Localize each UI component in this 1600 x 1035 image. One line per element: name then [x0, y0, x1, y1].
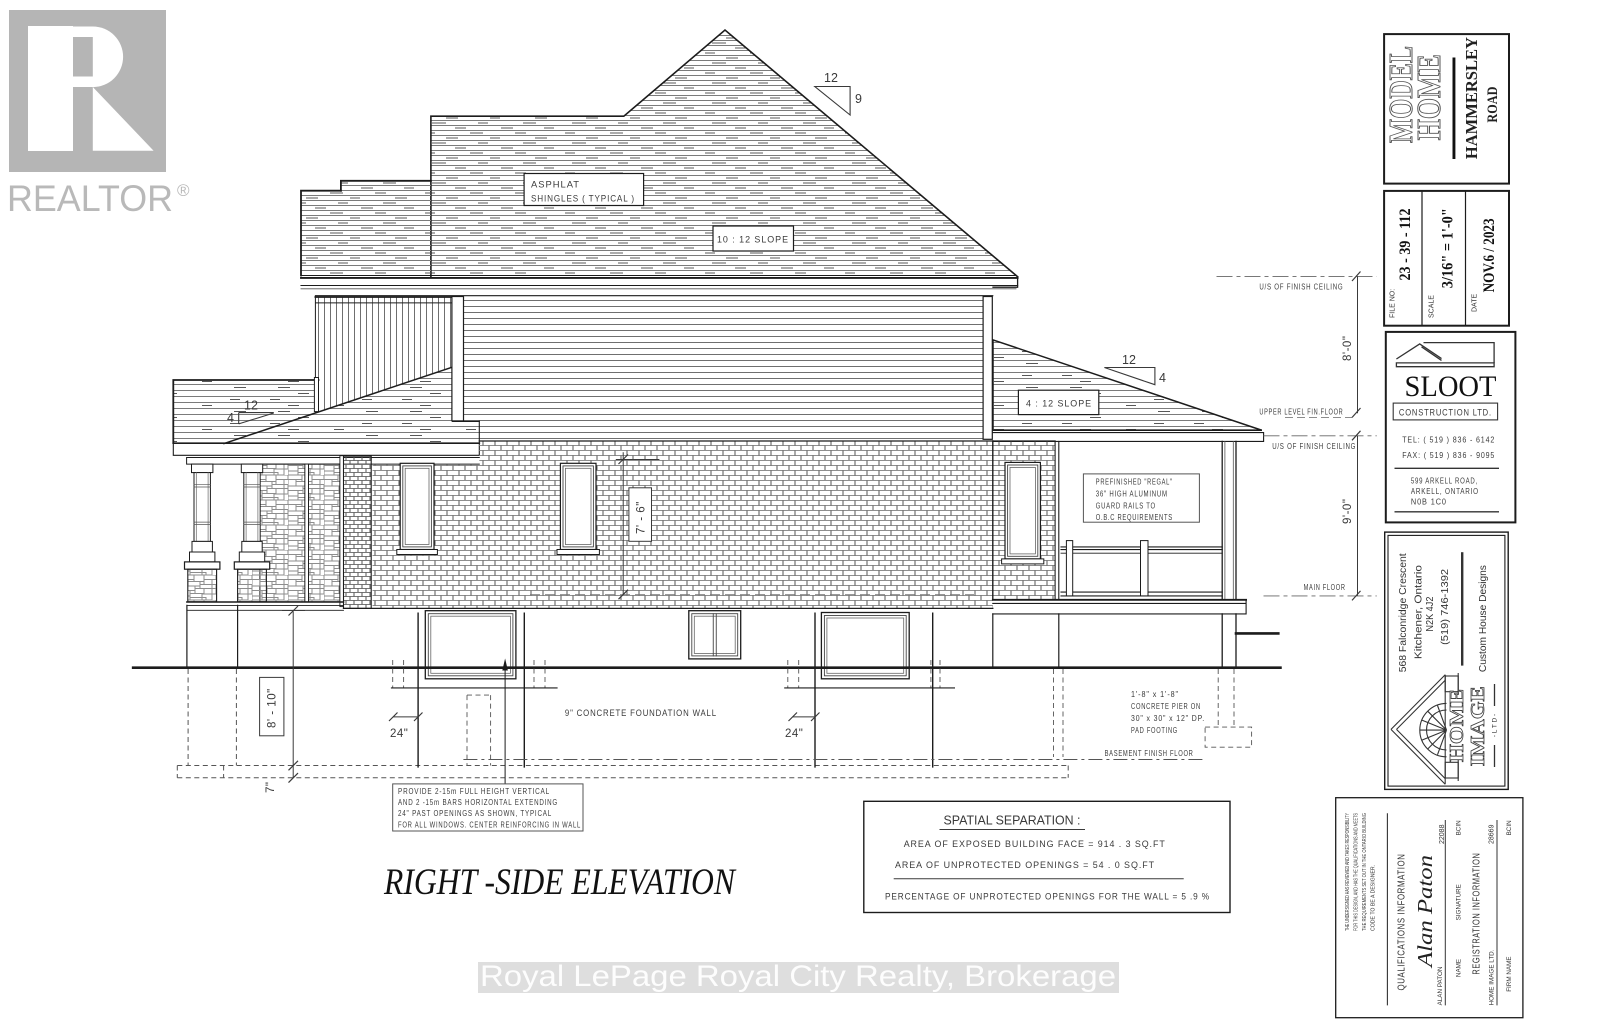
svg-text:TEL: ( 519 ) 836 - 6142: TEL: ( 519 ) 836 - 6142: [1402, 436, 1495, 445]
svg-text:GUARD RAILS TO: GUARD RAILS TO: [1096, 502, 1156, 511]
svg-text:N2K 4J2: N2K 4J2: [1425, 596, 1436, 631]
svg-text:4 : 12 SLOPE: 4 : 12 SLOPE: [1026, 398, 1092, 409]
svg-text:AREA OF UNPROTECTED OPENINGS: AREA OF UNPROTECTED OPENINGS = 54 . 0 SQ…: [895, 860, 1155, 871]
svg-text:599 ARKELL ROAD,: 599 ARKELL ROAD,: [1411, 477, 1478, 486]
svg-text:REGISTRATION INFORMATION: REGISTRATION INFORMATION: [1471, 853, 1483, 975]
svg-text:SHINGLES ( TYPICAL ): SHINGLES ( TYPICAL ): [531, 193, 635, 204]
svg-text:9'-0": 9'-0": [1342, 499, 1354, 524]
svg-text:ALAN PATON: ALAN PATON: [1437, 966, 1444, 1005]
svg-text:FAX: ( 519 ) 836 - 9095: FAX: ( 519 ) 836 - 9095: [1402, 451, 1495, 460]
svg-text:SPATIAL SEPARATION :: SPATIAL SEPARATION :: [944, 814, 1081, 828]
svg-text:Custom House Designs: Custom House Designs: [1478, 565, 1489, 672]
svg-text:ROAD: ROAD: [1485, 86, 1501, 122]
svg-text:BCIN: BCIN: [1456, 820, 1463, 835]
svg-text:12: 12: [244, 399, 258, 413]
svg-text:U/S OF FINISH CEILING: U/S OF FINISH CEILING: [1272, 441, 1356, 451]
svg-text:4: 4: [227, 411, 234, 425]
svg-text:568 Falconridge Crescent: 568 Falconridge Crescent: [1398, 553, 1409, 672]
svg-text:FIRM NAME: FIRM NAME: [1506, 956, 1513, 991]
svg-text:UPPER LEVEL FIN.FLOOR: UPPER LEVEL FIN.FLOOR: [1259, 407, 1343, 417]
svg-text:CONSTRUCTION LTD.: CONSTRUCTION LTD.: [1399, 407, 1492, 417]
svg-text:24": 24": [785, 728, 803, 740]
svg-text:THE REQUIREMENTS SET OUT IN TH: THE REQUIREMENTS SET OUT IN THE ONTARIO …: [1362, 813, 1368, 931]
svg-text:FILE NO:: FILE NO:: [1390, 289, 1397, 318]
svg-text:SIGNATURE: SIGNATURE: [1456, 884, 1463, 920]
svg-text:N0B 1C0: N0B 1C0: [1411, 498, 1447, 507]
svg-text:Alan Paton: Alan Paton: [1413, 855, 1437, 969]
svg-text:FOR THIS DESIGN, AND HAS THE: FOR THIS DESIGN, AND HAS THE QUALIFICATI…: [1354, 813, 1360, 931]
svg-text:HAMMERSLEY: HAMMERSLEY: [1462, 37, 1481, 159]
svg-text:12: 12: [824, 71, 838, 85]
svg-text:36" HIGH ALUMINUM: 36" HIGH ALUMINUM: [1096, 490, 1168, 499]
svg-text:THE UNDERSIGNED HAS REVIEWED A: THE UNDERSIGNED HAS REVIEWED AND TAKES R…: [1345, 813, 1351, 931]
svg-text:9: 9: [855, 92, 862, 106]
svg-text:28669: 28669: [1489, 824, 1496, 844]
svg-text:7' - 6": 7' - 6": [636, 501, 648, 534]
svg-text:7": 7": [265, 782, 277, 793]
svg-text:RIGHT -SIDE ELEVATION: RIGHT -SIDE ELEVATION: [383, 862, 737, 903]
svg-text:PERCENTAGE OF UNPROTECTED OPE: PERCENTAGE OF UNPROTECTED OPENINGS FOR T…: [885, 892, 1210, 903]
svg-text:9" CONCRETE FOUNDATION WALL: 9" CONCRETE FOUNDATION WALL: [565, 708, 717, 718]
svg-text:HOME: HOME: [1411, 54, 1448, 140]
svg-text:SCALE: SCALE: [1429, 295, 1436, 318]
svg-text:U/S OF FINISH CEILING: U/S OF FINISH CEILING: [1259, 282, 1343, 292]
svg-text:30" x 30" x 12" DP.: 30" x 30" x 12" DP.: [1131, 714, 1205, 723]
svg-text:DATE: DATE: [1472, 294, 1479, 312]
svg-text:CODE TO BE A DESIGNER.: CODE TO BE A DESIGNER.: [1371, 865, 1377, 931]
svg-text:23 - 39 - 112: 23 - 39 - 112: [1397, 208, 1414, 280]
svg-text:PROVIDE 2-15m FULL HEIGHT VERT: PROVIDE 2-15m FULL HEIGHT VERTICAL: [398, 787, 550, 796]
svg-text:AND 2 -15m BARS HORIZONTAL EXT: AND 2 -15m BARS HORIZONTAL EXTENDING: [398, 798, 558, 807]
svg-text:NAME: NAME: [1456, 959, 1463, 977]
svg-text:8'-0": 8'-0": [1342, 336, 1354, 361]
svg-text:REALTOR: REALTOR: [7, 178, 173, 219]
svg-text:12: 12: [1122, 353, 1136, 367]
svg-text:4: 4: [1159, 371, 1166, 385]
svg-text:24": 24": [390, 728, 408, 740]
svg-text:8' - 10": 8' - 10": [267, 688, 279, 728]
svg-text:HOME: HOME: [1446, 689, 1468, 762]
svg-text:(519) 746-1392: (519) 746-1392: [1440, 569, 1451, 645]
svg-text:ARKELL, ONTARIO: ARKELL, ONTARIO: [1411, 487, 1479, 496]
svg-text:24" PAST OPENINGS AS SHOWN, TY: 24" PAST OPENINGS AS SHOWN, TYPICAL: [398, 809, 552, 818]
svg-text:BCIN: BCIN: [1506, 820, 1513, 835]
svg-text:QUALIFICATIONS INFORMATION: QUALIFICATIONS INFORMATION: [1396, 854, 1408, 991]
svg-text:PAD FOOTING: PAD FOOTING: [1131, 726, 1178, 735]
svg-text:BASEMENT FINISH FLOOR: BASEMENT FINISH FLOOR: [1105, 748, 1194, 758]
svg-text:1'-8" x 1'-8": 1'-8" x 1'-8": [1131, 690, 1179, 699]
svg-text:10 : 12 SLOPE: 10 : 12 SLOPE: [717, 234, 789, 245]
svg-text:3/16" = 1'-0": 3/16" = 1'-0": [1440, 208, 1457, 288]
svg-text:AREA OF EXPOSED BUILDING FACE: AREA OF EXPOSED BUILDING FACE = 914 . 3 …: [904, 839, 1166, 850]
svg-text:ASPHLAT: ASPHLAT: [531, 179, 580, 190]
svg-text:SLOOT: SLOOT: [1405, 370, 1497, 403]
svg-text:CONCRETE PIER ON: CONCRETE PIER ON: [1131, 702, 1201, 711]
svg-text:Royal LePage Royal City Realty: Royal LePage Royal City Realty, Brokerag…: [480, 960, 1116, 993]
svg-text:IMAGE: IMAGE: [1467, 686, 1489, 766]
svg-text:®: ®: [177, 181, 190, 200]
svg-text:PREFINISHED "REGAL": PREFINISHED "REGAL": [1096, 478, 1173, 487]
svg-text:Kitchener, Ontario: Kitchener, Ontario: [1414, 565, 1425, 659]
svg-text:- L T D -: - L T D -: [1492, 714, 1499, 737]
svg-text:HOME IMAGE LTD.: HOME IMAGE LTD.: [1489, 949, 1496, 1005]
svg-text:O.B.C REQUIREMENTS: O.B.C REQUIREMENTS: [1096, 513, 1173, 522]
svg-text:NOV.6 / 2023: NOV.6 / 2023: [1481, 218, 1498, 292]
svg-text:FOR ALL WINDOWS. CENTER REINF: FOR ALL WINDOWS. CENTER REINFORCING IN W…: [398, 820, 581, 829]
svg-text:MAIN FLOOR: MAIN FLOOR: [1304, 582, 1346, 592]
